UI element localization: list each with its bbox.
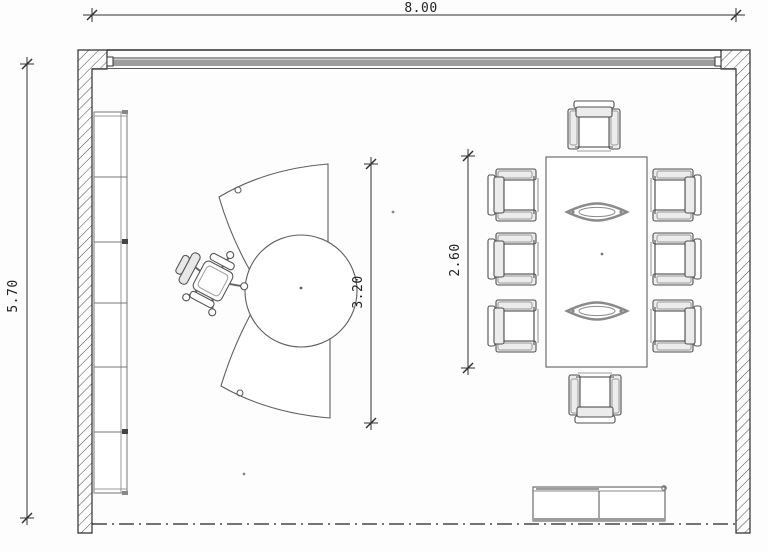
dimension-table-length (461, 149, 475, 375)
dimension-room-depth-label: 5.70 (6, 279, 21, 312)
conference-table (546, 157, 647, 367)
sideboard (533, 486, 666, 521)
conference-chair (568, 101, 620, 151)
right-wall (721, 50, 750, 533)
reference-dot (243, 473, 246, 476)
window-end-cap-left (107, 57, 113, 66)
window-end-cap-right (715, 57, 721, 66)
dimension-table-length-label: 2.60 (448, 243, 463, 276)
conference-chair (488, 169, 538, 221)
conference-chair (569, 373, 621, 423)
floor-plan-sheet: 8.00 5.70 (0, 0, 768, 552)
floor-plan-canvas: 8.00 5.70 (0, 0, 768, 552)
dimension-desk-span-label: 3.20 (351, 275, 366, 308)
conference-chair (488, 300, 538, 352)
shelf-unit (94, 110, 128, 495)
reference-dot (392, 211, 395, 214)
conference-chair (651, 233, 701, 285)
conference-chair (488, 233, 538, 285)
conference-chair (651, 169, 701, 221)
dimension-desk-span (364, 157, 378, 430)
executive-desk (219, 164, 357, 418)
conference-chair (651, 300, 701, 352)
dimension-room-depth (20, 57, 34, 525)
desk-round-extension (245, 235, 357, 347)
dimension-room-width-label: 8.00 (404, 1, 437, 16)
window-band (92, 50, 736, 69)
